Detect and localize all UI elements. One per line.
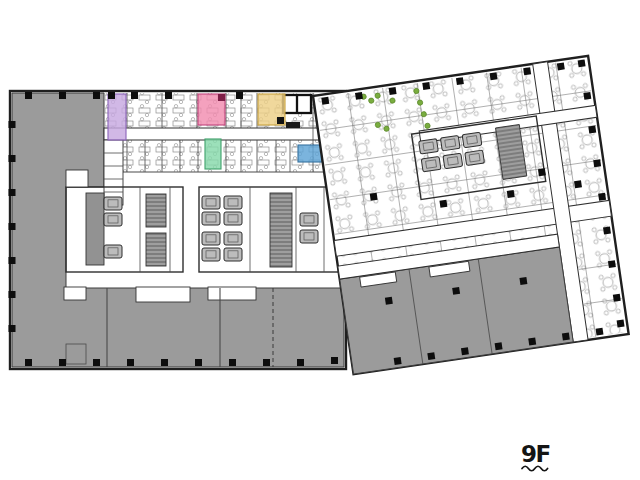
- highlight-room-purple: [108, 94, 126, 140]
- corridor-top: [104, 128, 344, 140]
- stair-shaft: [146, 194, 166, 227]
- pink-room-column: [218, 94, 225, 101]
- highlight-room-blue: [298, 145, 322, 162]
- highlight-room-green: [205, 139, 221, 169]
- floor-plan: 9F: [0, 0, 640, 480]
- right-building: [313, 56, 629, 374]
- shaft: [86, 193, 104, 265]
- floor-label: 9F: [521, 441, 550, 471]
- floor-plan-page: 9F: [0, 0, 640, 480]
- stair-shaft: [146, 233, 166, 266]
- floor-label-text: 9F: [521, 441, 550, 467]
- yellow-room-column: [277, 117, 284, 124]
- stair-shaft: [270, 193, 292, 267]
- left-building: [9, 91, 347, 369]
- small-rooms-column: [104, 140, 123, 205]
